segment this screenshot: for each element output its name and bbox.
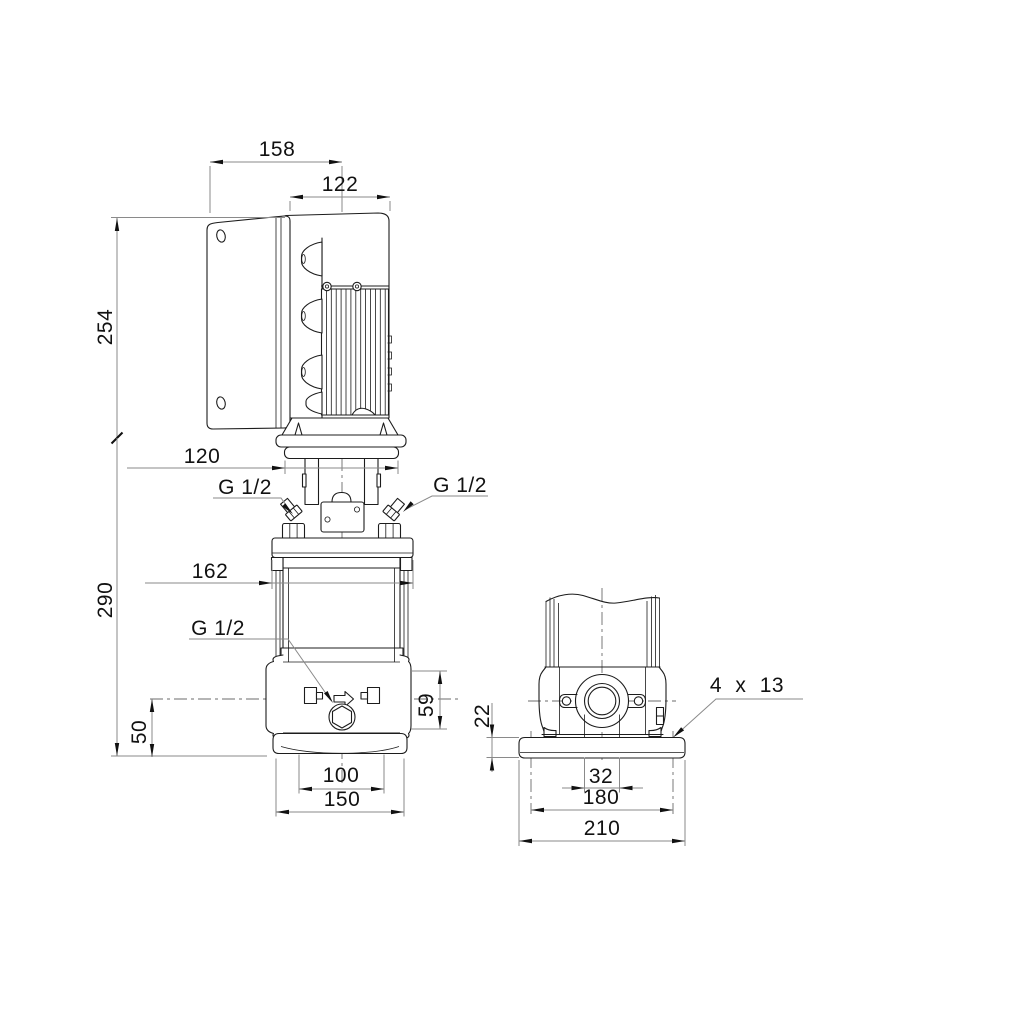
- dim-label-150: 150: [324, 788, 361, 811]
- dim-label-290: 290: [94, 582, 117, 619]
- flange-bolt-left: [562, 697, 570, 705]
- control-box: [207, 216, 290, 429]
- dim-hole-spacing: 180: [531, 786, 673, 812]
- dim-port-centerline-height: 50: [128, 699, 154, 757]
- head-plug-left: [283, 524, 305, 540]
- dim-label-158: 158: [259, 138, 296, 161]
- suction-flange: [266, 655, 283, 740]
- pump-head: [272, 493, 413, 558]
- stool-leg-right: [365, 459, 379, 505]
- staybolt-nut-right: [401, 558, 413, 571]
- motor-screw-right: [353, 282, 361, 290]
- dim-converter-width: 122: [290, 173, 390, 211]
- dim-port-flange-height: 59: [411, 671, 447, 729]
- dim-base-plate-thickness: 22: [471, 703, 519, 772]
- dim-label-120: 120: [184, 445, 221, 468]
- vent-plug-left: [278, 496, 302, 521]
- callout-vent-right: G 1/2: [403, 474, 488, 512]
- port-bore: [588, 687, 616, 715]
- vent-plug-right: [383, 496, 407, 521]
- dim-label-162: 162: [192, 560, 229, 583]
- dim-label-254: 254: [94, 309, 117, 346]
- base-plug-right: [368, 688, 380, 704]
- label-vent-left: G 1/2: [218, 476, 272, 499]
- dim-label-180: 180: [583, 786, 620, 809]
- label-drain: G 1/2: [191, 617, 245, 640]
- callout-vent-left: G 1/2: [213, 476, 293, 514]
- discharge-flange: [400, 655, 411, 740]
- dim-label-122: 122: [322, 173, 359, 196]
- pump-dimension-diagram: 158 122 254 290 120: [0, 0, 1024, 1024]
- motor-body: [282, 213, 392, 418]
- drawing-sheet: 158 122 254 290 120: [0, 0, 1024, 1024]
- dim-label-210: 210: [584, 817, 621, 840]
- side-base: [519, 667, 685, 758]
- label-foundation-holes: 4 x 13: [710, 674, 784, 697]
- label-vent-right: G 1/2: [433, 474, 487, 497]
- base-plate: [519, 738, 685, 759]
- callout-foundation-holes: 4 x 13: [673, 674, 803, 738]
- dim-label-32: 32: [589, 765, 613, 788]
- pump-base: [266, 648, 411, 754]
- dim-label-50: 50: [128, 720, 151, 744]
- break-line: [546, 594, 660, 603]
- stool-leg-left: [305, 459, 319, 505]
- staybolt-nut-left: [272, 558, 284, 571]
- dimensions: 158 122 254 290 120: [94, 138, 803, 846]
- side-tab: [657, 708, 664, 717]
- base-foot: [273, 734, 407, 754]
- head-plug-right: [379, 524, 401, 540]
- motor-stool: [276, 418, 406, 505]
- dim-label-22: 22: [471, 704, 494, 728]
- sleeve-broken: [545, 594, 660, 667]
- motor-screw-left: [323, 282, 331, 290]
- dim-label-100: 100: [323, 764, 360, 787]
- flange-bolt-right: [634, 697, 642, 705]
- base-plug-left: [305, 688, 317, 704]
- dim-label-59: 59: [415, 693, 438, 717]
- head-flange: [272, 538, 413, 558]
- shaft-dome: [332, 493, 351, 503]
